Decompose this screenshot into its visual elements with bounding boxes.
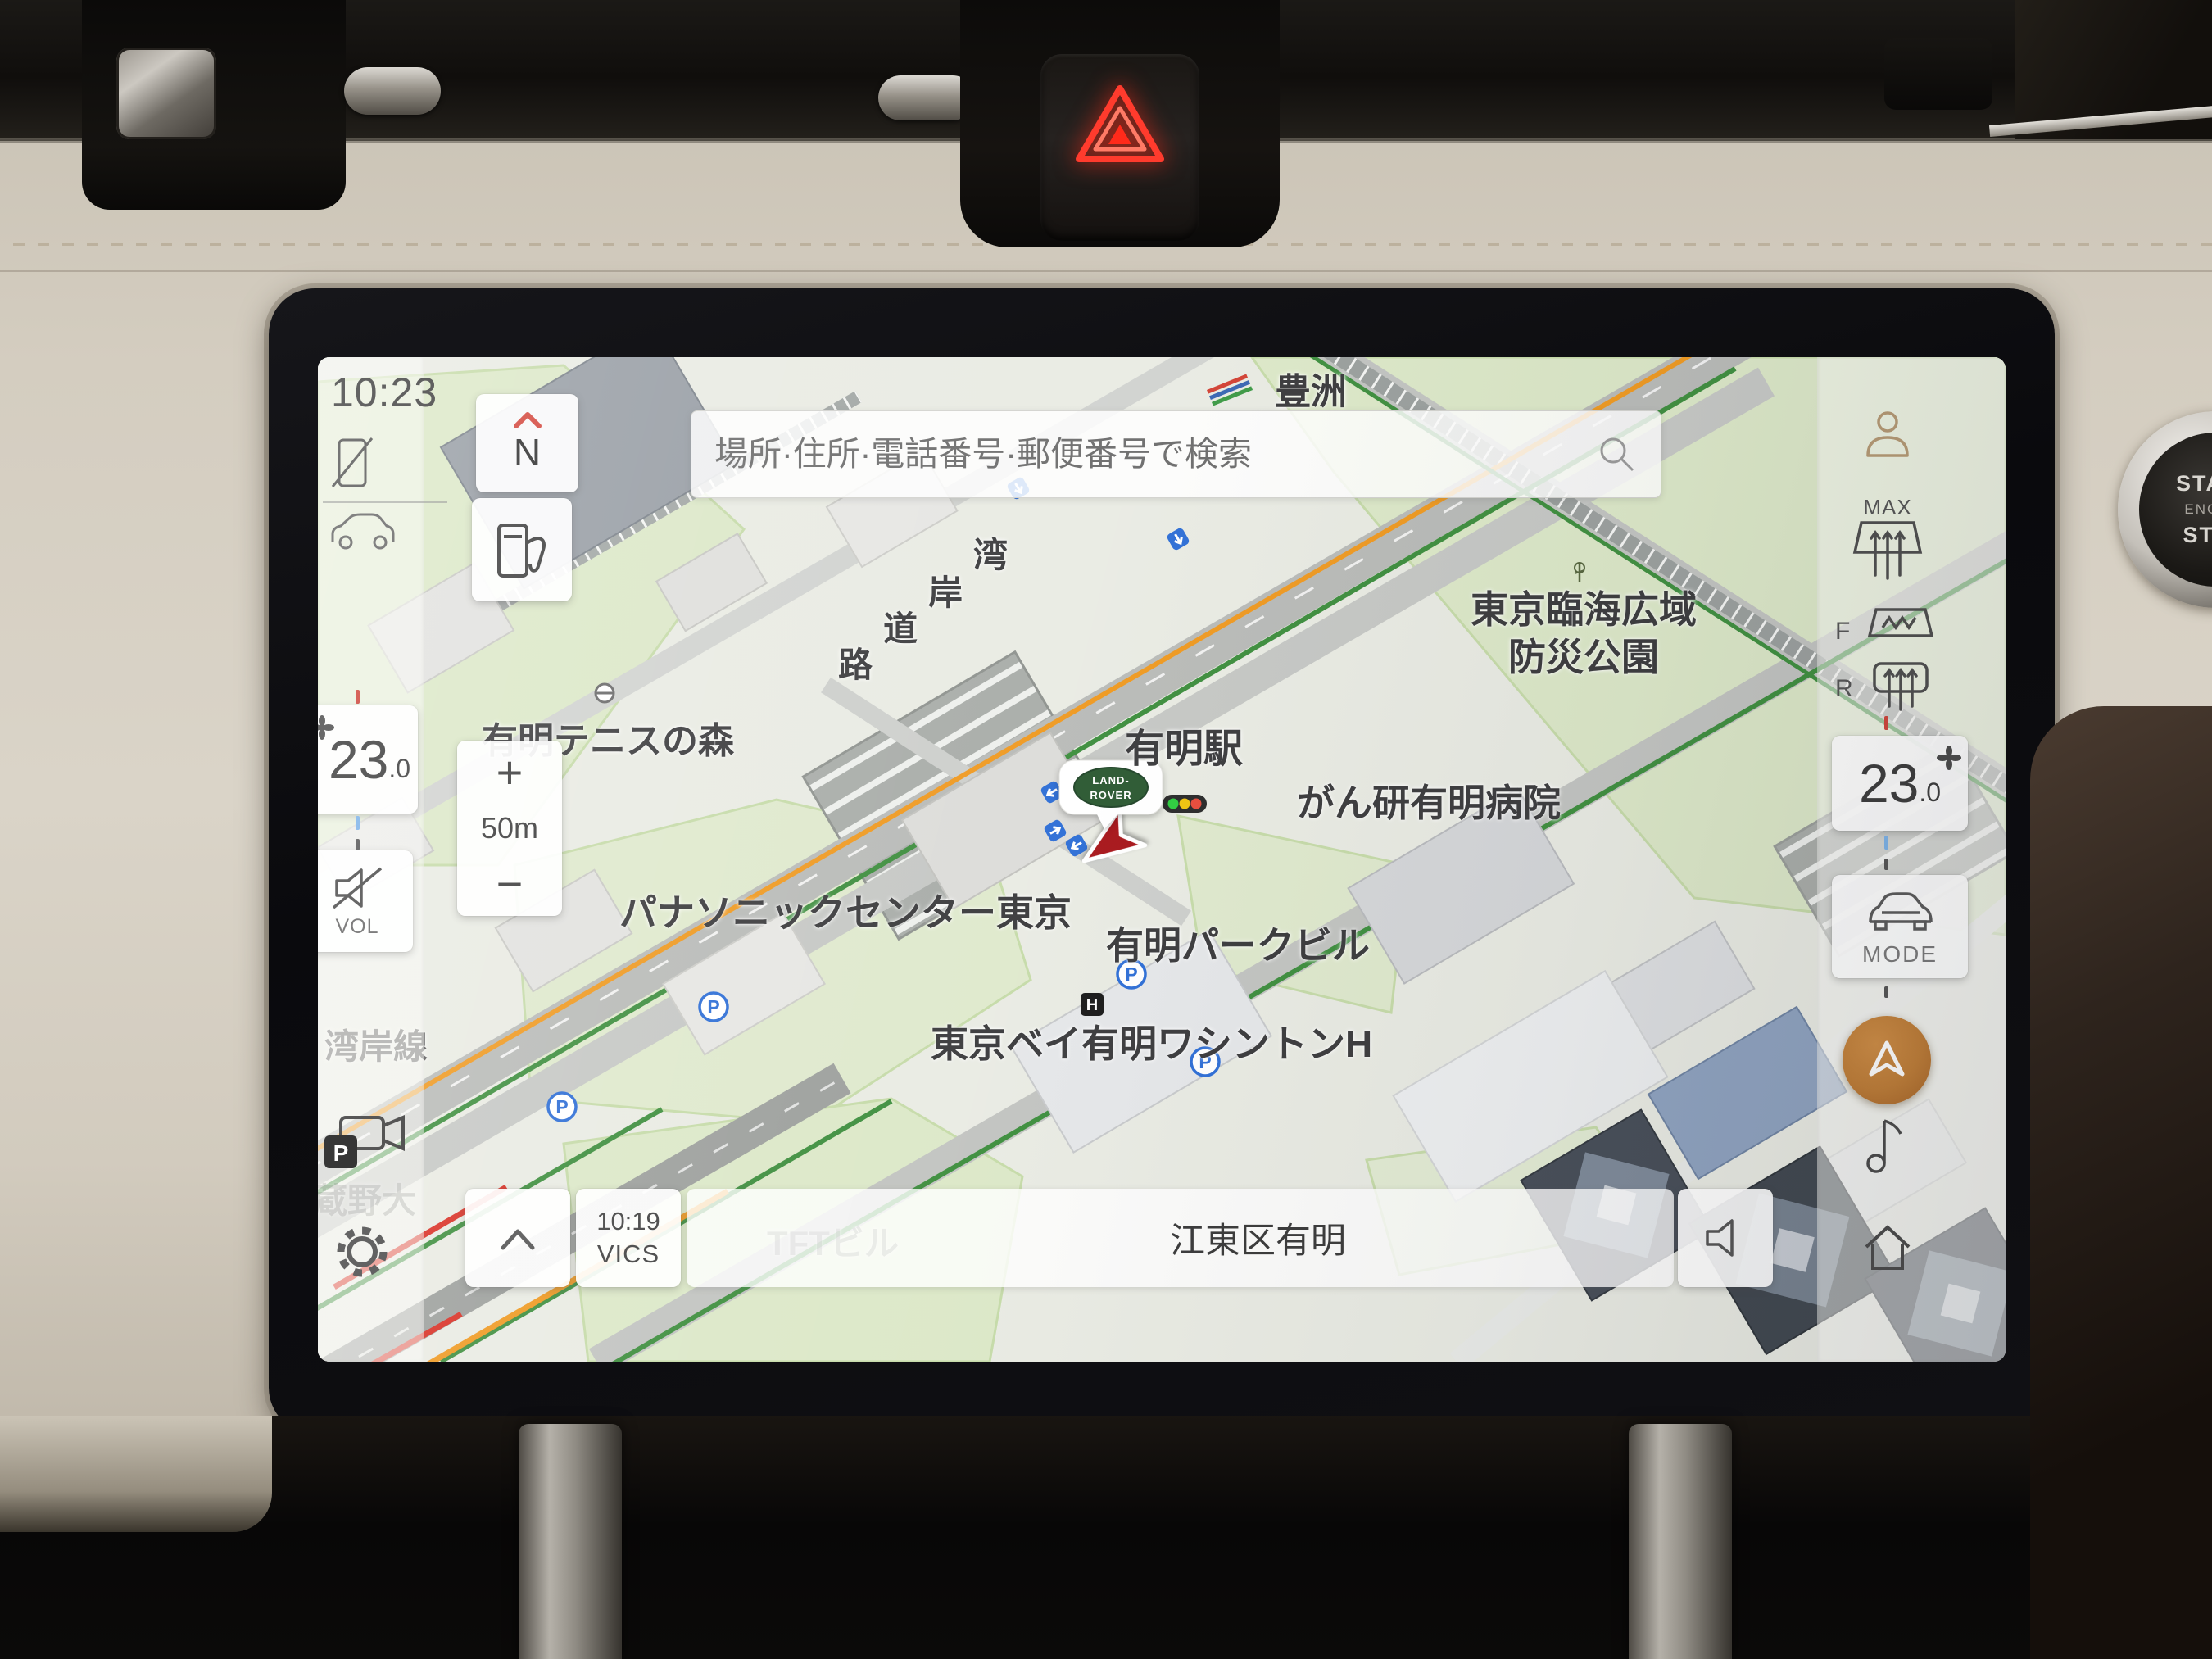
parking-camera-button[interactable]: P (323, 1113, 406, 1180)
fan-icon (1937, 746, 1961, 770)
temp-slider-cold-tick (1884, 836, 1888, 850)
defrost-rear-label: R (1835, 675, 1853, 703)
map-label-toyosu: 豊洲 (1275, 362, 1347, 415)
volume-label: VOL (335, 915, 378, 939)
car-mode-icon (1857, 886, 1942, 936)
screen-stand-left (519, 1424, 622, 1659)
map-label-park2: 防災公園 (1508, 628, 1659, 682)
front-deicer-button[interactable] (1863, 603, 1938, 650)
slider-notch (356, 839, 360, 850)
map-label-wangan-road-2: 岸 (928, 565, 963, 615)
vics-label: VICS (597, 1240, 660, 1269)
front-wiper-deicer-icon (1863, 603, 1938, 650)
map-label-hospital: がん研有明病院 (1297, 773, 1561, 827)
music-note-icon (1863, 1113, 1911, 1175)
engine-start-stop-button[interactable]: START ENGINE STOP (2118, 411, 2212, 608)
map-zoom-control: + 50m − (457, 741, 562, 916)
temperature-right-tile[interactable]: 23 .0 (1832, 736, 1968, 831)
max-defrost-button[interactable] (1847, 518, 1929, 588)
map-label-washington-hotel: 東京ベイ有明ワシントンH (931, 1014, 1372, 1068)
temp-slider-cold-tick (356, 816, 360, 830)
fuel-station-button[interactable] (472, 498, 572, 601)
defrost-front-label: F (1835, 618, 1850, 646)
current-location-bar[interactable]: 江東区有明 (687, 1189, 1674, 1287)
land-rover-logo-top: LAND- (1092, 774, 1129, 786)
temp-slider-hot-tick (1884, 716, 1888, 730)
clock: 10:23 (331, 369, 437, 416)
guidance-voice-button[interactable] (1678, 1189, 1773, 1287)
map-label-ariake-station: 有明駅 (1125, 716, 1243, 773)
profile-button[interactable] (1861, 408, 1914, 462)
fuel-pump-icon (492, 515, 551, 584)
map-label-wangan-road-4: 路 (838, 637, 873, 687)
speaker-muted-icon (330, 864, 384, 912)
map-label-park1: 東京臨海広域 (1471, 580, 1697, 634)
map-label-panasonic-center: パナソニックセンター東京 (619, 883, 1072, 937)
home-icon (1858, 1217, 1917, 1276)
temp-left-value: 23 (329, 728, 388, 791)
nav-arrow-icon (1864, 1037, 1910, 1083)
search-icon[interactable] (1598, 436, 1636, 474)
screen-stand-right (1629, 1424, 1732, 1659)
station-icon (596, 684, 614, 702)
traffic-light-icon (1163, 795, 1207, 813)
infotainment-screen[interactable]: P H (318, 357, 2006, 1362)
temp-left-decimal: .0 (388, 754, 410, 791)
defrost-max-label: MAX (1863, 495, 1911, 520)
vics-time: 10:19 (596, 1207, 660, 1236)
fan-icon (318, 715, 334, 740)
dash-lower-right-panel (2030, 706, 2212, 1659)
air-vent-right (1884, 38, 1992, 110)
engine-engine-label: ENGINE (2184, 501, 2212, 518)
media-button[interactable] (1863, 1113, 1911, 1175)
navigation-app-button[interactable] (1843, 1016, 1931, 1104)
temp-right-value: 23 (1859, 752, 1919, 814)
search-input[interactable] (691, 435, 1598, 474)
speaker-icon (1702, 1217, 1748, 1259)
volume-mute-button[interactable]: VOL (318, 850, 413, 952)
home-button[interactable] (1858, 1217, 1917, 1276)
map-label-wangan-road-1: 湾 (973, 528, 1008, 578)
map-label-wangan-road-3: 道 (883, 601, 918, 651)
person-icon (1861, 408, 1914, 462)
drive-mode-button[interactable]: MODE (1832, 875, 1968, 978)
bottom-expand-button[interactable] (465, 1189, 570, 1287)
engine-start-label: START (2176, 471, 2212, 496)
hazard-lights-button[interactable] (1040, 54, 1199, 241)
dash-lower-left (0, 1416, 272, 1532)
hotel-icon (1081, 993, 1104, 1016)
zoom-scale-label: 50m (481, 811, 538, 845)
compass-label: N (514, 430, 541, 474)
rear-defrost-icon (1863, 659, 1938, 713)
temperature-left-tile[interactable]: 23 .0 (318, 705, 418, 814)
hazard-triangle-icon (1072, 82, 1167, 167)
hazard-module (960, 0, 1280, 247)
vics-info-tile[interactable]: 10:19 VICS (576, 1189, 681, 1287)
leather-seam (0, 270, 2212, 272)
traffic-info-car-icon[interactable] (324, 510, 398, 551)
search-bar[interactable] (691, 410, 1661, 498)
phone-disconnected-icon[interactable] (331, 436, 374, 490)
divider (323, 501, 447, 503)
engine-button-face: START ENGINE STOP (2139, 433, 2212, 587)
slider-notch (1884, 859, 1888, 870)
vent-adjuster-knob[interactable] (116, 48, 216, 139)
compass-north-chevron-icon (514, 412, 542, 428)
temp-slider-hot-tick (356, 690, 360, 704)
chevron-up-icon (493, 1222, 542, 1254)
lower-console (0, 1416, 2212, 1659)
zoom-in-button[interactable]: + (496, 752, 524, 793)
rear-defrost-button[interactable] (1863, 659, 1938, 713)
gear-icon (329, 1219, 395, 1285)
vent-slider[interactable] (344, 67, 441, 115)
slider-notch (1884, 986, 1888, 998)
settings-button[interactable] (329, 1219, 395, 1285)
map-label-park-building: 有明パークビル (1106, 916, 1370, 970)
temp-right-decimal: .0 (1919, 777, 1941, 814)
touchscreen-bezel: P H (269, 288, 2055, 1434)
compass-button[interactable]: N (476, 394, 578, 492)
engine-stop-label: STOP (2183, 523, 2212, 548)
zoom-out-button[interactable]: − (496, 863, 524, 904)
windshield-defrost-icon (1847, 518, 1929, 588)
car-dashboard: P H (0, 0, 2212, 1659)
mode-label: MODE (1862, 941, 1938, 968)
land-rover-logo-bottom: ROVER (1090, 789, 1131, 801)
current-location-text: 江東区有明 (1170, 1213, 1346, 1263)
camera-p-badge: P (333, 1140, 349, 1166)
